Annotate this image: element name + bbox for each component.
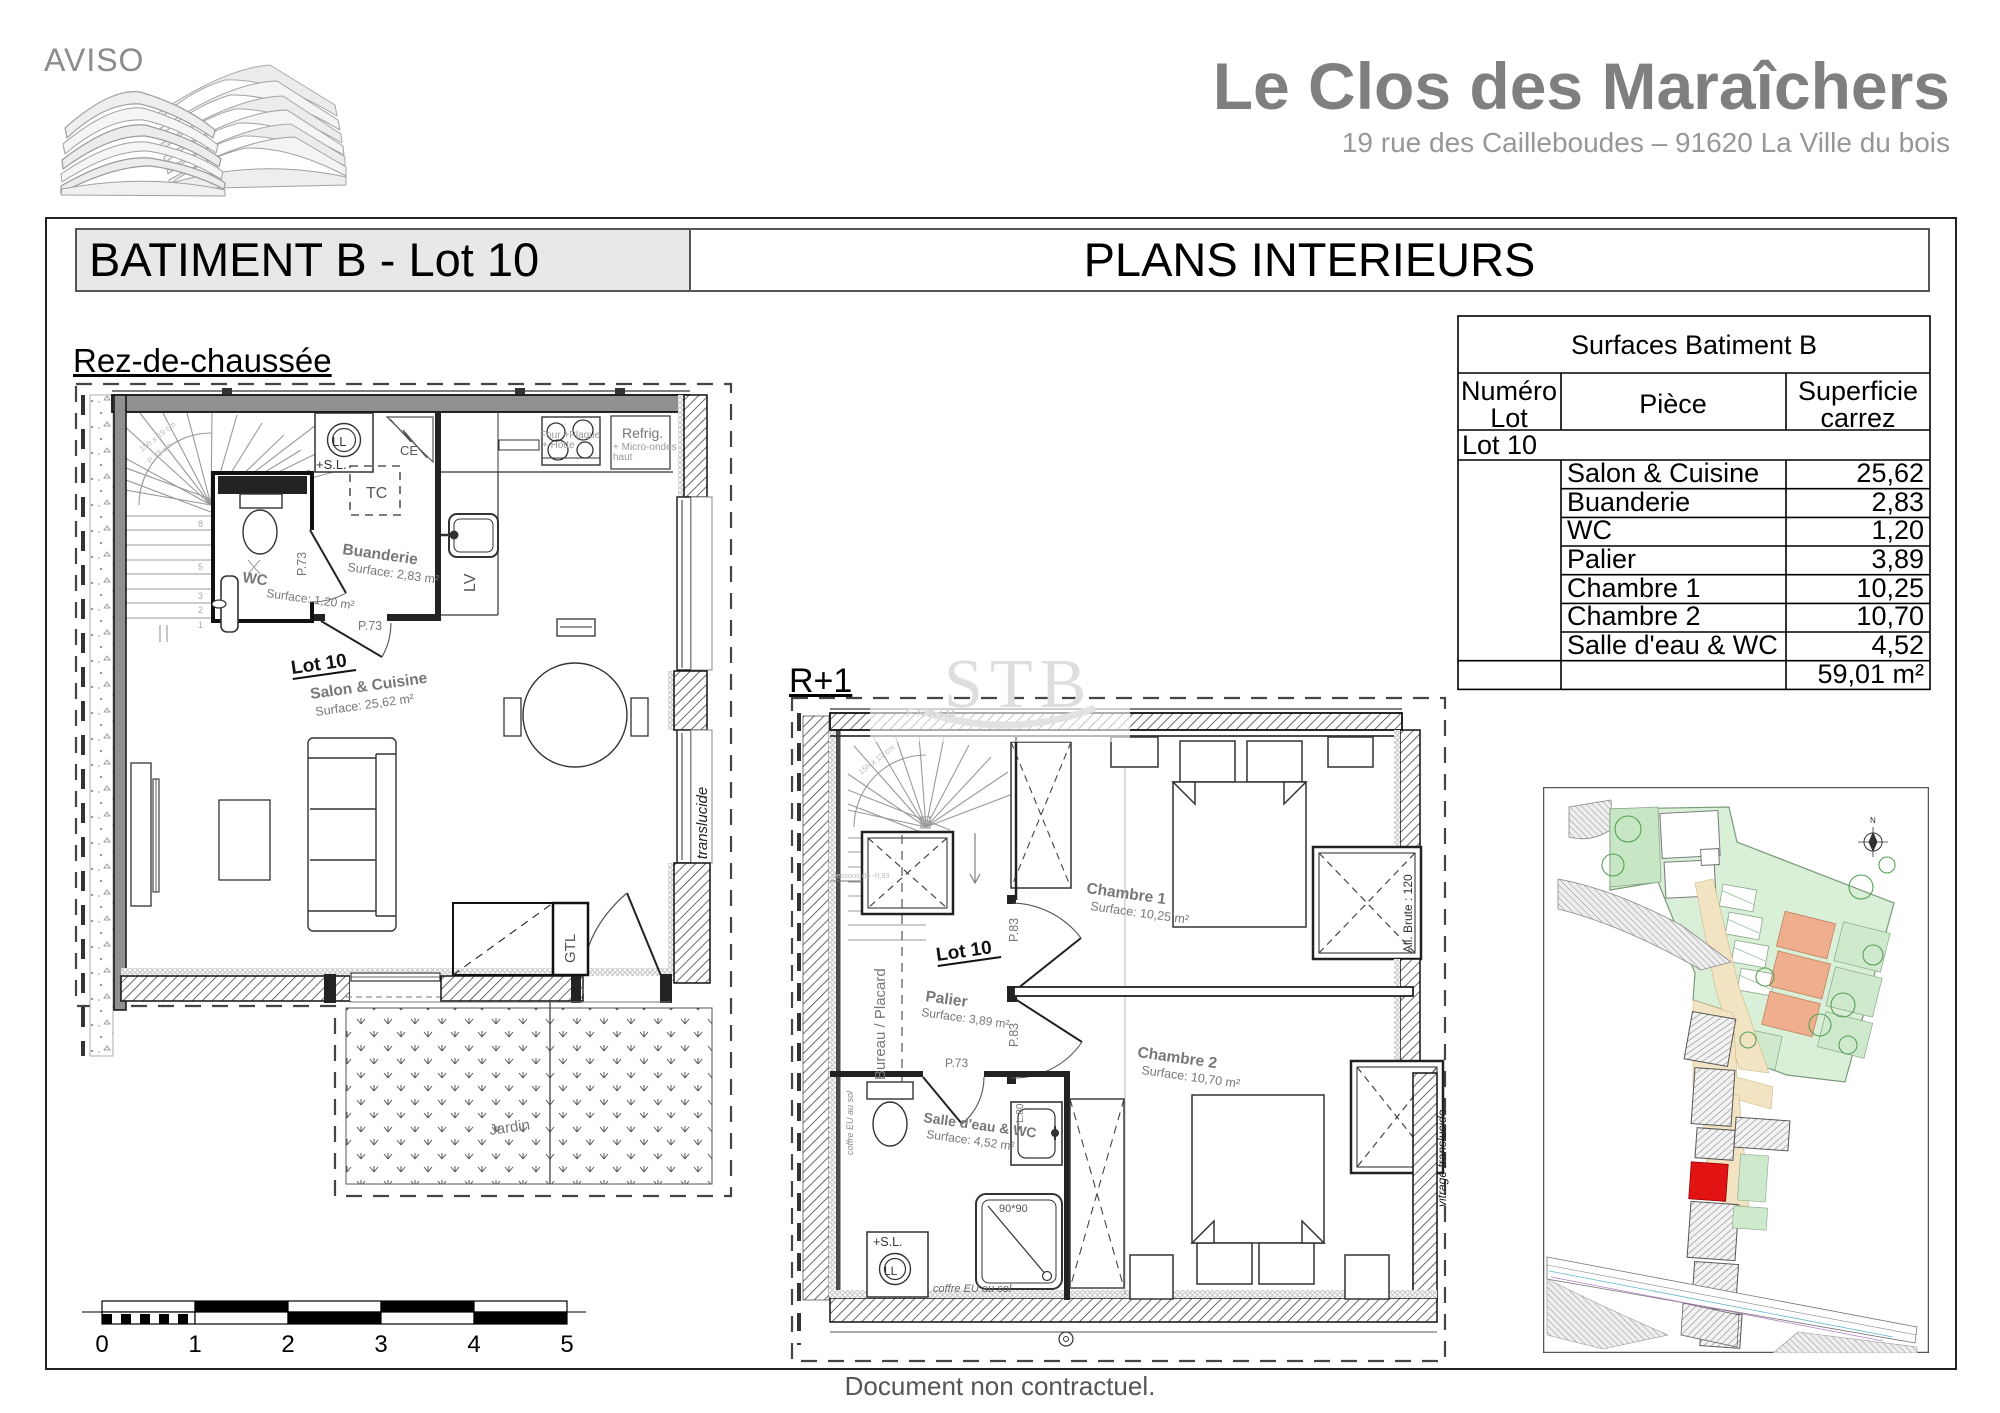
svg-text:Surfaces Batiment B: Surfaces Batiment B <box>1571 330 1817 360</box>
svg-text:P.73: P.73 <box>295 552 309 576</box>
svg-text:P.83: P.83 <box>1007 1023 1021 1047</box>
svg-text:dessous de -0,93: dessous de -0,93 <box>832 871 890 880</box>
svg-text:3: 3 <box>374 1331 387 1358</box>
svg-text:Numéro: Numéro <box>1461 376 1557 406</box>
svg-text:P.73: P.73 <box>945 1056 968 1070</box>
svg-text:8: 8 <box>198 519 203 529</box>
svg-text:Lot: Lot <box>1490 403 1528 433</box>
svg-text:25,62: 25,62 <box>1856 458 1924 488</box>
svg-text:5: 5 <box>198 562 203 572</box>
svg-text:Bureau / Placard: Bureau / Placard <box>872 968 889 1080</box>
svg-text:Salle d'eau & WC: Salle d'eau & WC <box>1567 630 1778 660</box>
svg-text:2,83: 2,83 <box>1871 487 1924 517</box>
svg-text:coffre EU au sol: coffre EU au sol <box>845 1090 855 1155</box>
svg-text:LL: LL <box>884 1264 898 1278</box>
svg-text:WC: WC <box>1567 515 1612 545</box>
svg-text:90*90: 90*90 <box>999 1203 1028 1215</box>
svg-text:1: 1 <box>188 1331 201 1358</box>
svg-text:Pièce: Pièce <box>1639 389 1707 419</box>
svg-text:CE: CE <box>400 443 418 458</box>
svg-text:WC: WC <box>241 569 268 589</box>
svg-text:2: 2 <box>198 605 203 615</box>
svg-text:TC: TC <box>366 485 387 502</box>
svg-text:Chambre 1: Chambre 1 <box>1567 573 1701 603</box>
svg-text:4: 4 <box>467 1331 480 1358</box>
svg-text:1,20: 1,20 <box>1871 515 1924 545</box>
svg-text:Superficie: Superficie <box>1798 376 1918 406</box>
svg-text:0: 0 <box>95 1331 108 1358</box>
svg-text:Buanderie: Buanderie <box>1567 487 1690 517</box>
svg-text:P.83: P.83 <box>1007 918 1021 942</box>
svg-text:10,25: 10,25 <box>1856 573 1924 603</box>
svg-text:1: 1 <box>198 620 203 630</box>
svg-text:N: N <box>1870 816 1876 825</box>
svg-text:Salon & Cuisine: Salon & Cuisine <box>1567 458 1759 488</box>
svg-text:Chambre 2: Chambre 2 <box>1567 601 1701 631</box>
svg-text:4,52: 4,52 <box>1871 630 1924 660</box>
svg-text:3: 3 <box>198 591 203 601</box>
svg-text:59,01 m²: 59,01 m² <box>1817 659 1924 689</box>
svg-text:haut: haut <box>613 452 633 463</box>
svg-text:3,89: 3,89 <box>1871 544 1924 574</box>
svg-text:+S.L.: +S.L. <box>873 1235 903 1249</box>
svg-text:LL: LL <box>332 434 346 449</box>
svg-text:+ Hotte: + Hotte <box>542 440 575 451</box>
svg-text:5: 5 <box>560 1331 573 1358</box>
svg-text:GTL: GTL <box>562 934 579 963</box>
svg-text:L.80: L.80 <box>1015 1103 1026 1123</box>
svg-text:+S.L.: +S.L. <box>316 457 347 472</box>
svg-text:carrez: carrez <box>1820 403 1895 433</box>
svg-text:coffre EU au sol: coffre EU au sol <box>933 1283 1012 1295</box>
svg-text:P.73: P.73 <box>358 619 382 633</box>
svg-text:2: 2 <box>281 1331 294 1358</box>
svg-text:Refrig.: Refrig. <box>622 425 663 441</box>
svg-text:Lot 10: Lot 10 <box>1462 430 1537 460</box>
svg-text:LV: LV <box>462 573 479 592</box>
svg-text:10,70: 10,70 <box>1856 601 1924 631</box>
svg-text:Palier: Palier <box>1567 544 1636 574</box>
svg-text:All. Brute : 120: All. Brute : 120 <box>1401 874 1415 953</box>
